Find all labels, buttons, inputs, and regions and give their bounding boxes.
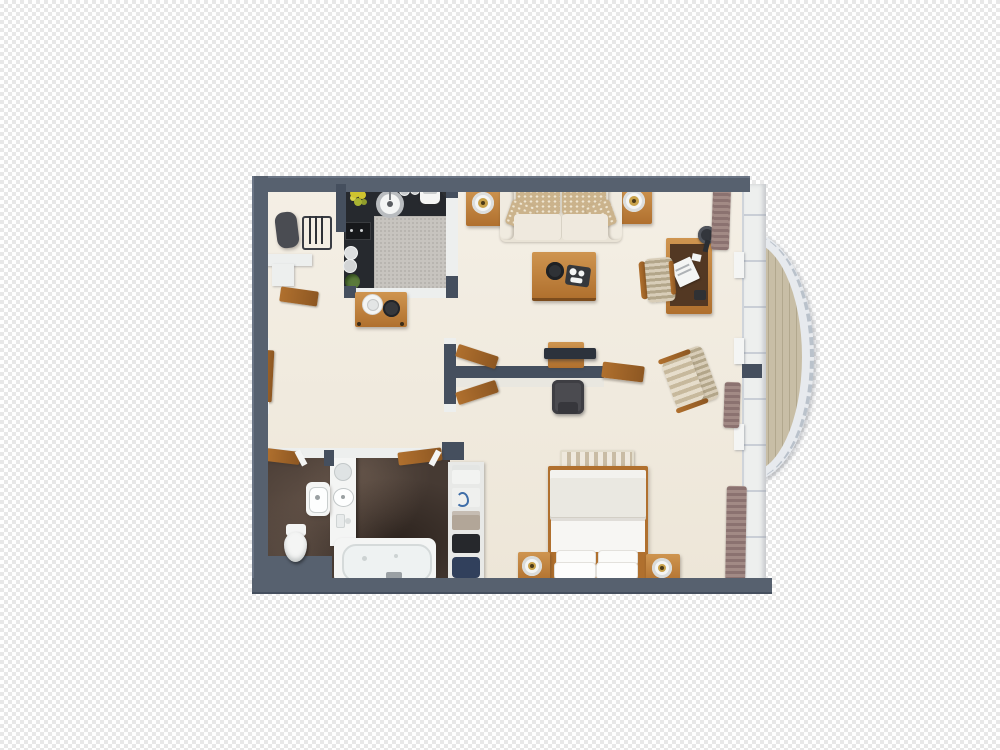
shelf-item-towel-white <box>452 488 480 507</box>
divider-window-stub <box>742 364 762 378</box>
console-tray <box>383 300 400 317</box>
desk-chair <box>638 257 678 304</box>
window-sash-2 <box>734 338 744 364</box>
toilet <box>284 524 308 564</box>
curtain-bottom <box>725 486 747 580</box>
closet-wall-b <box>272 264 294 286</box>
shelf-item-robe <box>452 465 480 484</box>
sofa-seat-2 <box>562 214 608 240</box>
valet-stand <box>302 216 332 250</box>
end-table-left <box>466 188 502 226</box>
floor-plan <box>0 0 1000 750</box>
bath-wall-stub-right <box>442 442 464 460</box>
coffee-table-bowl <box>546 262 564 280</box>
shelf-item-taupe <box>452 511 480 530</box>
shelf-item-navy <box>452 557 480 578</box>
kitchen-east-wall-stub-bottom <box>446 276 458 298</box>
plate-left <box>344 246 358 260</box>
duvet-top <box>550 470 646 520</box>
vanity <box>330 456 356 546</box>
coffee-table <box>532 252 596 301</box>
bed <box>548 466 648 580</box>
table-lamp-left <box>472 192 494 214</box>
suitcase <box>274 211 300 249</box>
curtain-top <box>711 186 731 251</box>
divider-post <box>444 344 456 406</box>
cooktop <box>345 222 371 240</box>
sofa-seat-1 <box>514 214 562 240</box>
table-lamp-right <box>623 190 645 212</box>
bath-wall-stub-mid <box>324 450 334 466</box>
wall-closet-stub <box>336 184 346 232</box>
tv <box>544 348 596 359</box>
bedside-lamp-right <box>652 558 672 578</box>
plate-left-2 <box>343 259 357 273</box>
divider-post-cap-b <box>444 404 456 412</box>
wall-bottom <box>252 578 772 594</box>
hand-sink <box>306 482 330 516</box>
kitchen-east-wall <box>446 196 458 288</box>
wall-left <box>252 176 268 588</box>
shelf-item-black <box>452 534 480 553</box>
curtain-middle <box>723 382 741 429</box>
desk-item-dark <box>694 290 706 300</box>
window-sash-1 <box>734 252 744 278</box>
bedside-lamp-left <box>522 556 542 576</box>
console-table <box>355 292 407 327</box>
kitchen-rug <box>374 216 456 290</box>
duvet-bottom <box>551 518 645 552</box>
media-bench <box>552 380 584 414</box>
coffee-table-tray <box>565 264 592 287</box>
linen-shelf <box>448 462 484 582</box>
checker-background <box>0 0 1000 750</box>
wall-top <box>258 176 750 192</box>
sofa <box>500 186 622 242</box>
